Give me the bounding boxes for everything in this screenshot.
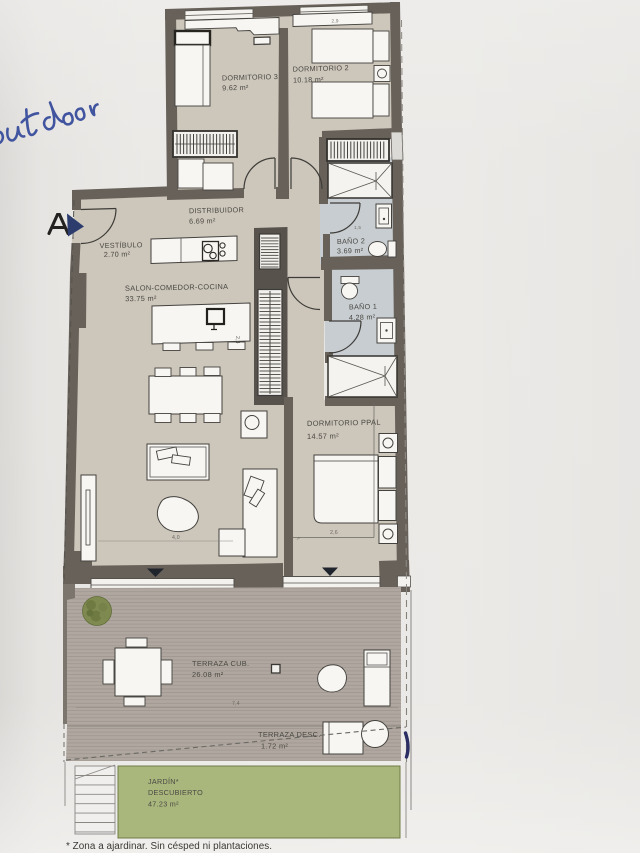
svg-text:2,9: 2,9 <box>331 18 339 24</box>
svg-text:TERRAZA CUB.: TERRAZA CUB. <box>192 659 249 668</box>
svg-text:2,6: 2,6 <box>330 530 338 536</box>
svg-text:JARDÍN*: JARDÍN* <box>148 777 179 786</box>
svg-text:DORMITORIO PPAL: DORMITORIO PPAL <box>307 418 381 428</box>
svg-text:DORMITORIO 3: DORMITORIO 3 <box>222 72 278 82</box>
svg-text:↗: ↗ <box>296 536 301 542</box>
svg-text:4,0: 4,0 <box>172 535 180 541</box>
svg-text:2,4: 2,4 <box>234 336 240 344</box>
svg-text:14.57 m²: 14.57 m² <box>307 431 339 441</box>
svg-text:4.28 m²: 4.28 m² <box>349 312 376 322</box>
svg-text:DESCUBIERTO: DESCUBIERTO <box>148 788 203 797</box>
svg-text:2.70 m²: 2.70 m² <box>104 249 131 259</box>
svg-text:10.18 m²: 10.18 m² <box>293 75 324 85</box>
svg-text:26.08 m²: 26.08 m² <box>192 670 224 679</box>
svg-text:SALON-COMEDOR-COCINA: SALON-COMEDOR-COCINA <box>125 282 228 293</box>
svg-text:BAÑO 2: BAÑO 2 <box>337 236 365 246</box>
svg-text:DISTRIBUIDOR: DISTRIBUIDOR <box>189 205 244 215</box>
svg-text:1,5: 1,5 <box>354 225 361 231</box>
svg-text:DORMITORIO 2: DORMITORIO 2 <box>293 63 349 73</box>
svg-text:7,4: 7,4 <box>232 701 240 707</box>
svg-text:TERRAZA DESC.: TERRAZA DESC. <box>258 730 321 739</box>
svg-text:47.23 m²: 47.23 m² <box>148 800 179 809</box>
svg-text:6.69 m²: 6.69 m² <box>189 216 216 226</box>
svg-text:1.72 m²: 1.72 m² <box>261 742 288 751</box>
svg-text:* Zona a ajardinar. Sin césped: * Zona a ajardinar. Sin césped ni planta… <box>66 841 272 852</box>
svg-text:BAÑO 1: BAÑO 1 <box>349 302 377 312</box>
svg-text:9.62 m²: 9.62 m² <box>222 83 249 93</box>
svg-text:VESTÍBULO: VESTÍBULO <box>100 240 143 250</box>
svg-text:3.69 m²: 3.69 m² <box>337 246 364 256</box>
svg-text:33.75 m²: 33.75 m² <box>125 294 157 304</box>
